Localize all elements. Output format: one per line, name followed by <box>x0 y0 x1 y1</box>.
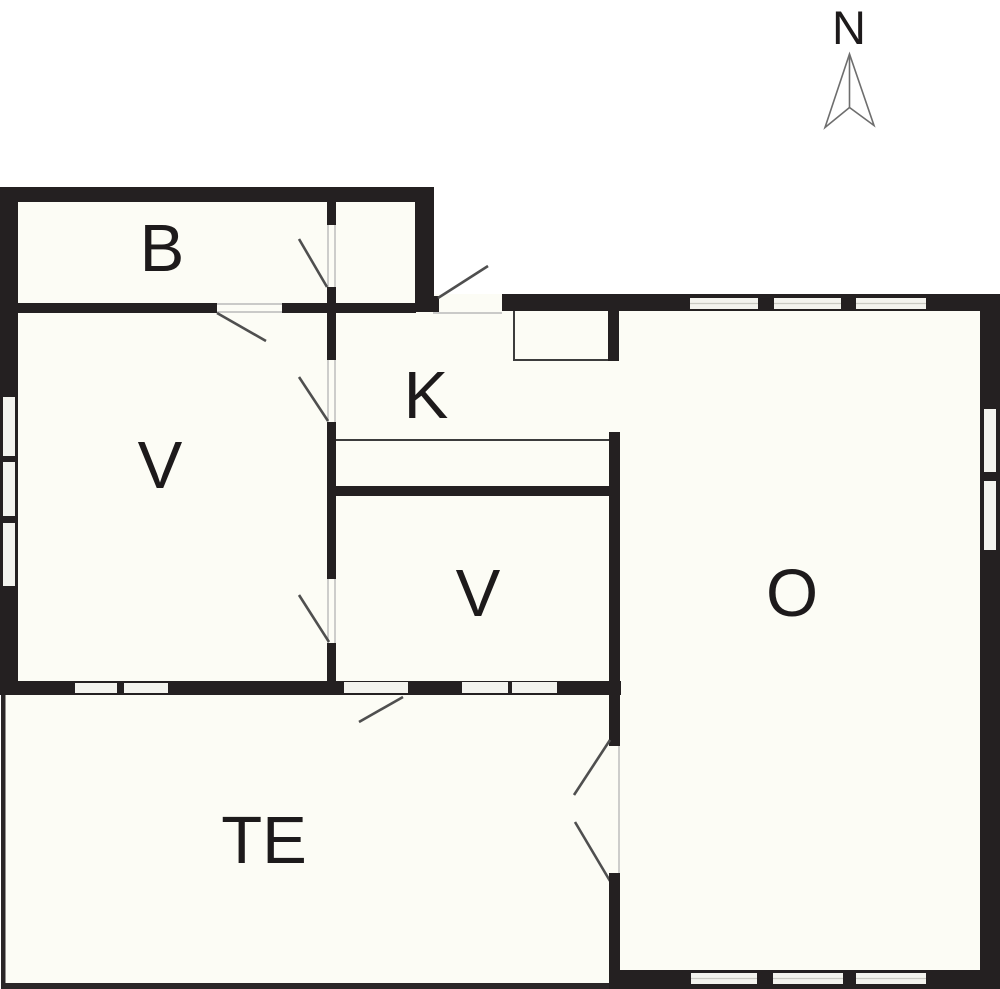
svg-text:B: B <box>140 211 185 286</box>
svg-text:V: V <box>456 556 501 631</box>
svg-text:K: K <box>404 358 449 433</box>
svg-text:N: N <box>832 1 866 54</box>
svg-text:O: O <box>766 556 818 631</box>
svg-text:V: V <box>138 428 183 503</box>
svg-text:TE: TE <box>221 803 307 878</box>
